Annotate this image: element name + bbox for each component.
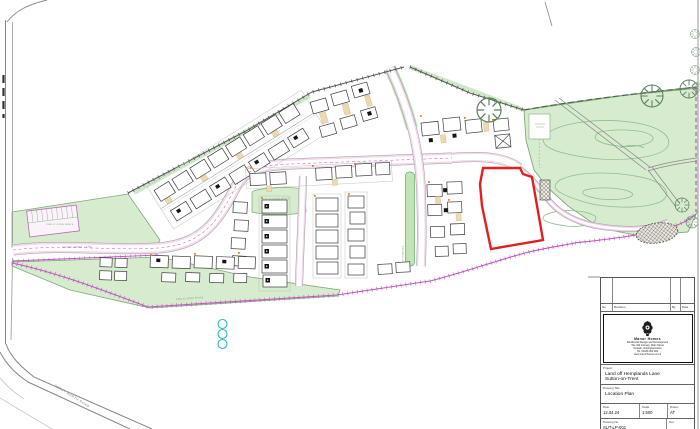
- revision-table-header: No. Revision By Date: [601, 304, 694, 312]
- drawing-number-label: Drawing No.: [603, 420, 664, 424]
- title-block: No. Revision By Date Manor Homes Residen…: [600, 277, 695, 429]
- field-line-topright: [545, 2, 552, 26]
- company-crest-icon: [639, 320, 656, 337]
- drawing-label: Drawing Title: [603, 386, 692, 390]
- landscape-strip: [406, 172, 415, 266]
- parking-area: [27, 205, 80, 237]
- scale-value: 1:500: [642, 410, 665, 415]
- project-section: Project Land off Hemplands Lane Sutton-o…: [601, 365, 694, 385]
- rev-label: Rev: [669, 420, 692, 424]
- number-row: Drawing No. SUT-LP-001 Rev: [601, 419, 694, 429]
- rev-col-by: By: [671, 304, 681, 311]
- housing-southeast-cluster: [427, 181, 467, 256]
- rev-col-no: No.: [601, 304, 613, 311]
- company-logo-box: Manor Homes Residential Design and Devel…: [601, 312, 694, 365]
- estate-road-east: [452, 157, 519, 168]
- date-value: 12.04.24: [603, 410, 637, 415]
- revision-rows: [601, 278, 694, 304]
- company-web: www.manorhomes.co.uk: [634, 353, 661, 356]
- date-label: Date: [603, 405, 637, 409]
- survey-circles: [218, 320, 227, 349]
- project-label: Project: [603, 366, 692, 370]
- housing-col-c: [345, 192, 367, 278]
- area-label-pos-west: PUBLIC OPEN SPACE: [46, 223, 74, 226]
- rev-col-date: Date: [681, 304, 694, 311]
- store-hatched: [540, 180, 550, 200]
- housing-terrace-col-a: [259, 196, 290, 291]
- location-plan-sheet: GREAT NORTH ROAD HEMPLANDS LANE PRIVATE …: [0, 0, 700, 429]
- application-site-red-line: [480, 168, 550, 249]
- exit-road-north: [390, 68, 422, 266]
- mid-road: [299, 176, 303, 286]
- housing-terrace-col-b: [313, 194, 341, 278]
- drawing-section: Drawing Title Location Plan: [601, 385, 694, 404]
- housing-south-pair: [378, 262, 411, 275]
- pumping-station-parcel: [529, 114, 550, 139]
- rev-col-revision: Revision: [613, 304, 671, 311]
- scale-label: Scale: [642, 405, 665, 409]
- drawing-number-value: SUT-LP-001: [603, 425, 664, 429]
- drawn-label: Drawn: [670, 405, 692, 409]
- field-row: Date 12.04.24 Scale 1:500 Drawn AT: [601, 404, 694, 419]
- road-label-hemplands-lane: HEMPLANDS LANE: [62, 244, 93, 249]
- drawing-title: Location Plan: [603, 392, 692, 398]
- drawn-value: AT: [670, 410, 692, 415]
- location-plan-drawing: GREAT NORTH ROAD HEMPLANDS LANE PRIVATE …: [0, 0, 700, 429]
- project-line2: Sutton-on-Trent: [605, 377, 692, 383]
